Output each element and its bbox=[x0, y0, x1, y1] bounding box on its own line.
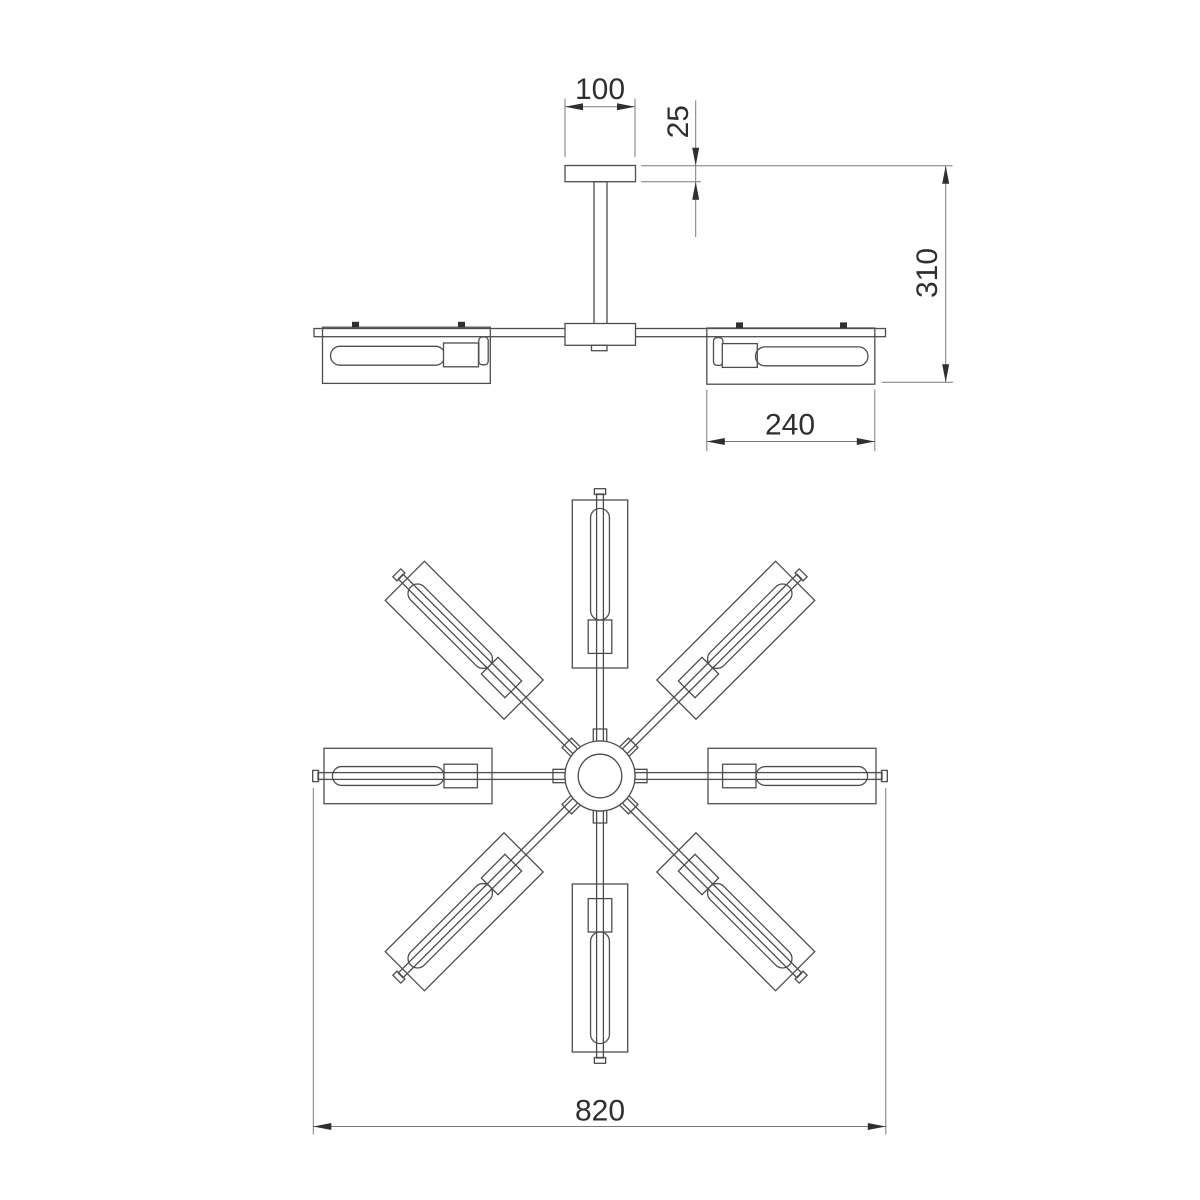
arrowhead-top bbox=[942, 166, 949, 184]
center-hub bbox=[565, 324, 636, 346]
dim-lines bbox=[313, 788, 886, 1135]
stem bbox=[594, 182, 607, 324]
dim-label-310: 310 bbox=[911, 248, 944, 298]
hub-outer-circle bbox=[565, 741, 635, 811]
drawing-page: 100 25 310 240 820 bbox=[0, 0, 1200, 1200]
side-view bbox=[314, 166, 886, 385]
dim-label-25: 25 bbox=[662, 105, 695, 138]
dim-canopy-width: 100 bbox=[565, 73, 635, 157]
arrowhead-down bbox=[692, 148, 699, 166]
arrowhead-left bbox=[707, 438, 725, 445]
top-view bbox=[313, 489, 888, 1064]
socket-bracket bbox=[714, 338, 723, 366]
dim-overall-height: 310 bbox=[882, 166, 954, 383]
dim-shade-length: 240 bbox=[707, 390, 875, 452]
arm-north bbox=[572, 489, 627, 743]
dim-label-100: 100 bbox=[575, 73, 625, 106]
socket-bracket bbox=[479, 337, 488, 365]
dim-canopy-height: 25 bbox=[641, 101, 953, 238]
lamp-tube bbox=[331, 346, 446, 365]
arrowhead-up bbox=[692, 182, 699, 200]
arm-northeast bbox=[604, 553, 823, 772]
arrowhead-right bbox=[868, 1123, 886, 1130]
ceiling-canopy bbox=[565, 166, 636, 182]
shade-left bbox=[323, 322, 491, 384]
lamp-socket bbox=[444, 343, 479, 367]
mounting-screw bbox=[736, 322, 743, 328]
shade-right bbox=[707, 322, 875, 384]
technical-drawing-canvas: 100 25 310 240 820 bbox=[0, 0, 1200, 1200]
arrowhead-left bbox=[313, 1123, 331, 1130]
lamp-tube bbox=[756, 347, 869, 366]
dim-label-240: 240 bbox=[765, 409, 815, 442]
mounting-screw bbox=[840, 322, 847, 328]
arm-east bbox=[633, 748, 887, 803]
hub-tab bbox=[592, 345, 608, 350]
mounting-screw bbox=[458, 322, 465, 328]
dim-overall-width: 820 bbox=[313, 788, 886, 1135]
arm-northwest bbox=[377, 553, 596, 772]
arm-south bbox=[572, 809, 627, 1063]
arrowhead-bottom bbox=[942, 364, 949, 382]
arm-west bbox=[313, 748, 567, 803]
arm-southwest bbox=[377, 780, 596, 999]
lamp-socket bbox=[722, 344, 757, 368]
arrowhead-right bbox=[857, 438, 875, 445]
dim-label-820: 820 bbox=[575, 1095, 625, 1128]
arm-southeast bbox=[604, 780, 823, 999]
mounting-screw bbox=[352, 322, 359, 328]
